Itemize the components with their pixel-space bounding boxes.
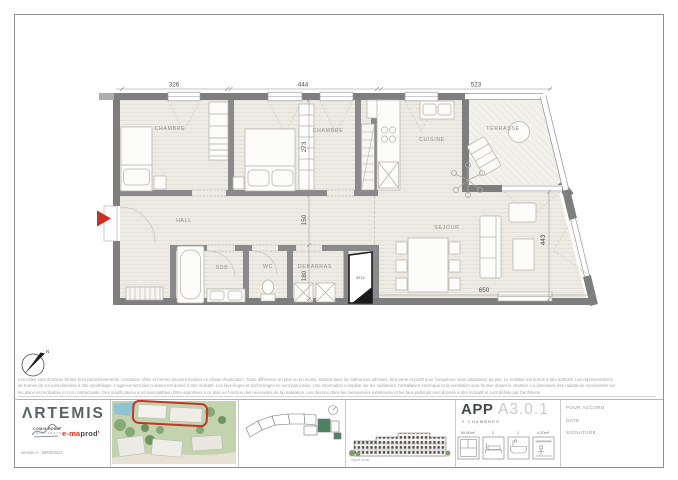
- dimension-mid-1: 273: [301, 141, 308, 152]
- apartment-code: A3.0.1: [498, 401, 549, 419]
- dimension-mid-3: 180: [301, 270, 308, 281]
- dimension-top-1: 326: [169, 82, 180, 89]
- signature-label: SIGNATURE: [566, 430, 596, 435]
- floor-plan: AT12: [22, 82, 594, 377]
- room-label-debarras: DEBARRAS: [298, 264, 332, 270]
- dimension-top-3: 523: [471, 82, 482, 89]
- elevation-caption: façade ouest: [351, 458, 369, 462]
- version-label: version A - 09/03/2022: [21, 450, 63, 455]
- room-label-hall: HALL: [176, 218, 192, 224]
- room-label-cuisine: CUISINE: [419, 137, 445, 143]
- north-arrow-icon: N: [22, 349, 49, 376]
- dimension-top-2: 444: [298, 82, 309, 89]
- room-label-sejour: SEJOUR: [434, 225, 459, 231]
- room-label-sdb: SDB: [216, 265, 229, 271]
- apartment-subtype: 2 CHAMBRES: [462, 419, 500, 424]
- room-label-wc: WC: [263, 264, 273, 270]
- disclaimer-text: Les côtes sont données brutes hors parac…: [18, 377, 656, 396]
- apartment-type: APP: [461, 401, 493, 418]
- stat-bathrooms-label: 1: [507, 430, 529, 435]
- room-label-at12: AT12: [356, 276, 365, 280]
- room-label-chambre2: CHAMBRE: [313, 128, 344, 134]
- producer-suffix: prod: [80, 429, 97, 438]
- at12-shaft: AT12: [349, 252, 372, 303]
- drawing-sheet: AT12: [0, 0, 678, 480]
- dimension-bottom: 650: [479, 287, 490, 294]
- signature-scribble: [30, 423, 64, 441]
- date-label: DATE: [566, 418, 580, 423]
- party-wall-stub: [99, 93, 114, 100]
- dimension-mid-2: 150: [301, 214, 308, 225]
- dimension-right: 443: [540, 234, 547, 245]
- room-label-chambre1: CHAMBRE: [155, 126, 186, 132]
- stat-terrace-label: 4.20m²: [532, 430, 554, 435]
- room-label-terrasse: TERRASSE: [486, 126, 520, 132]
- north-label: N: [46, 349, 49, 354]
- producer-prefix: e-ma: [62, 429, 80, 438]
- producer-logo: e-maprod': [62, 429, 100, 438]
- stat-bedrooms-label: 2: [482, 430, 504, 435]
- stat-area-label: 90.60m²: [457, 430, 479, 435]
- approval-label: POUR ACCORD: [566, 405, 605, 410]
- disclaimer-divider: [18, 396, 656, 397]
- producer-mark: ': [98, 429, 100, 438]
- brand-logo: ΛRTEMIS: [22, 405, 105, 423]
- disclaimer-line-2: de trames de sol sont données à titre sy…: [18, 383, 656, 389]
- cell-site-plan: [238, 400, 346, 467]
- disclaimer-line-3: les plans est indicative et non contract…: [18, 390, 656, 396]
- cell-elevation: [345, 400, 456, 467]
- cell-site-render: [110, 400, 239, 467]
